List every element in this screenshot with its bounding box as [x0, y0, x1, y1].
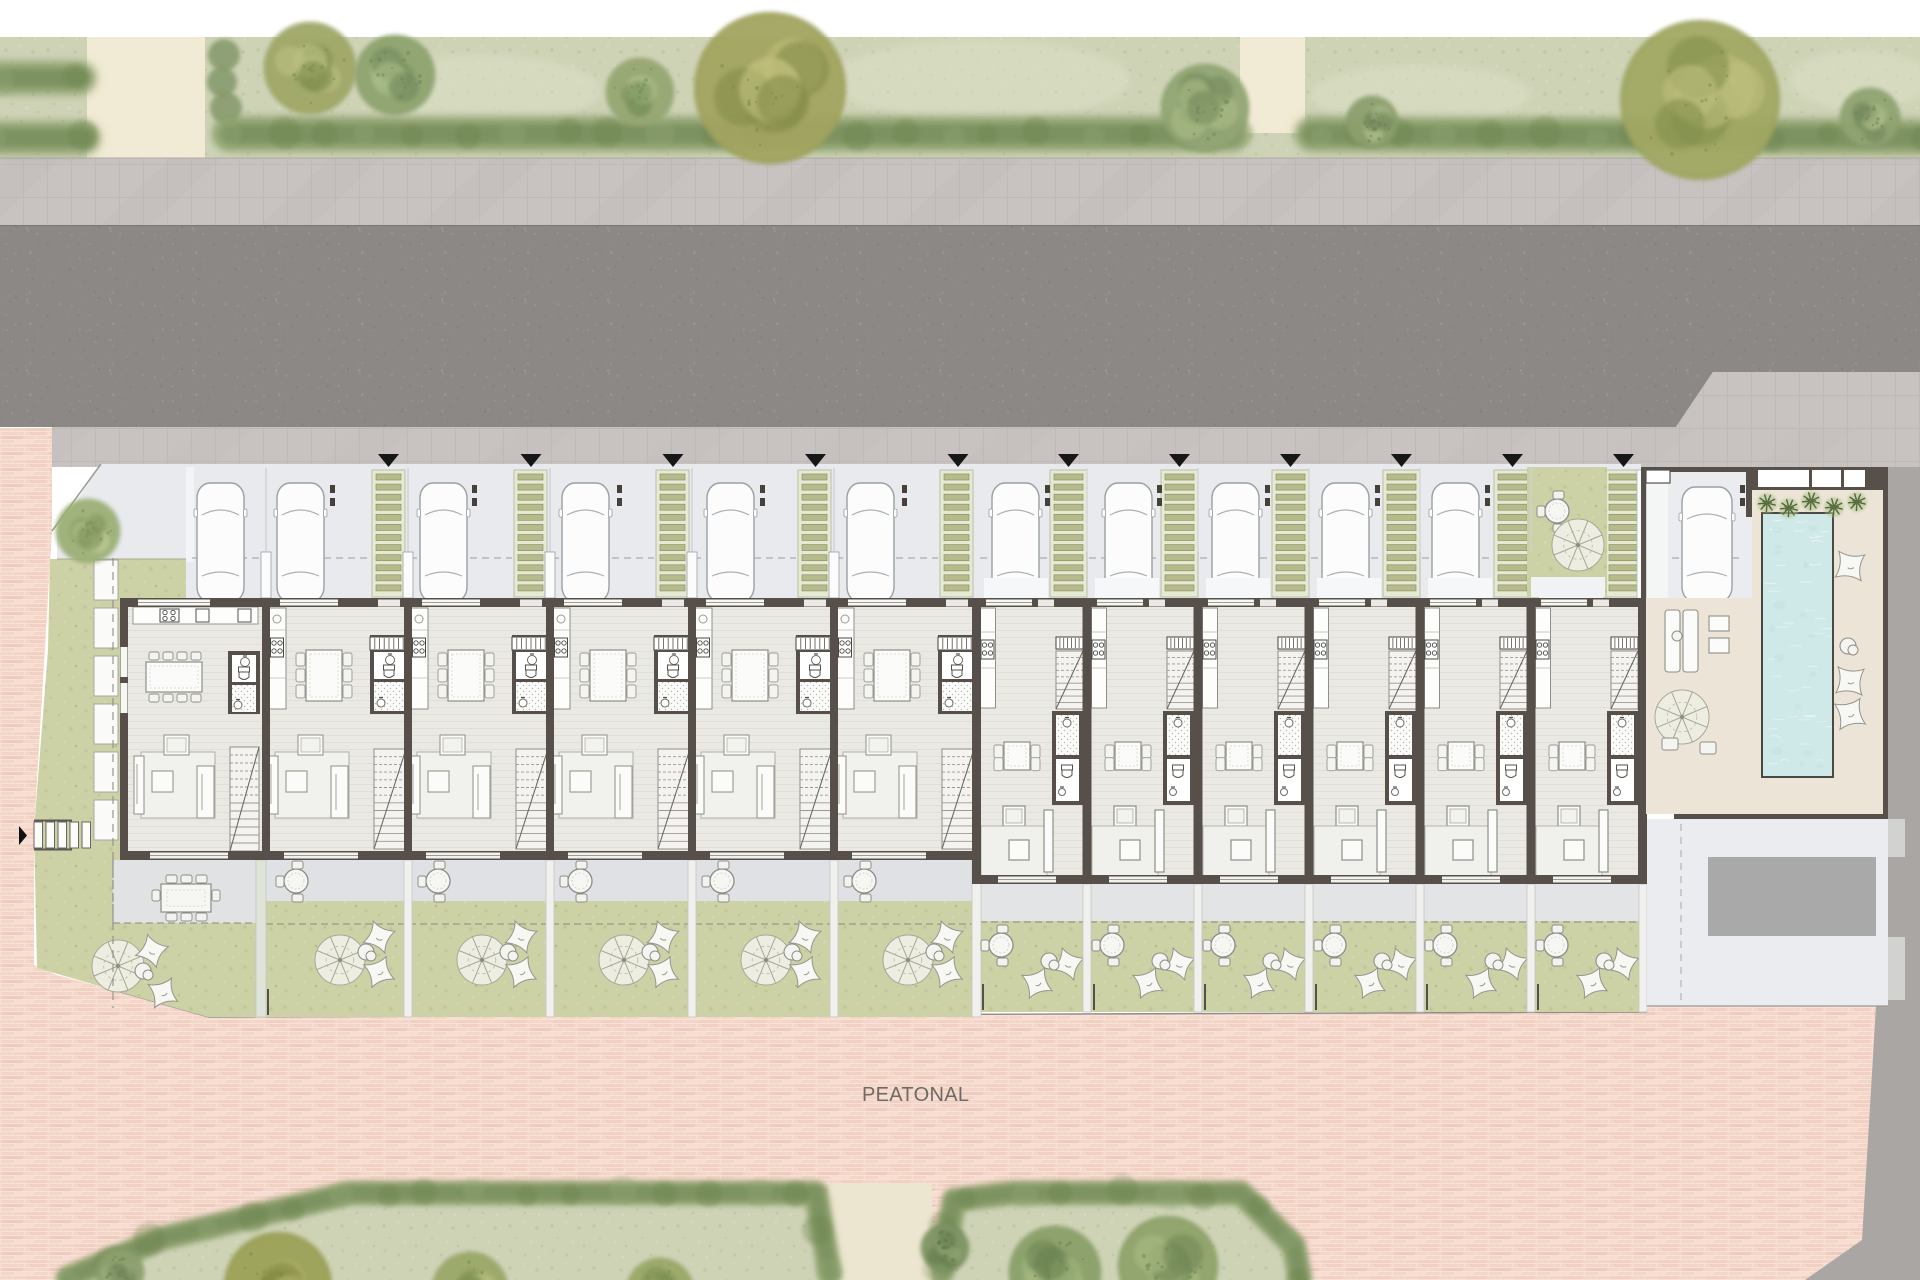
- svg-text:PEATONAL: PEATONAL: [862, 1084, 969, 1106]
